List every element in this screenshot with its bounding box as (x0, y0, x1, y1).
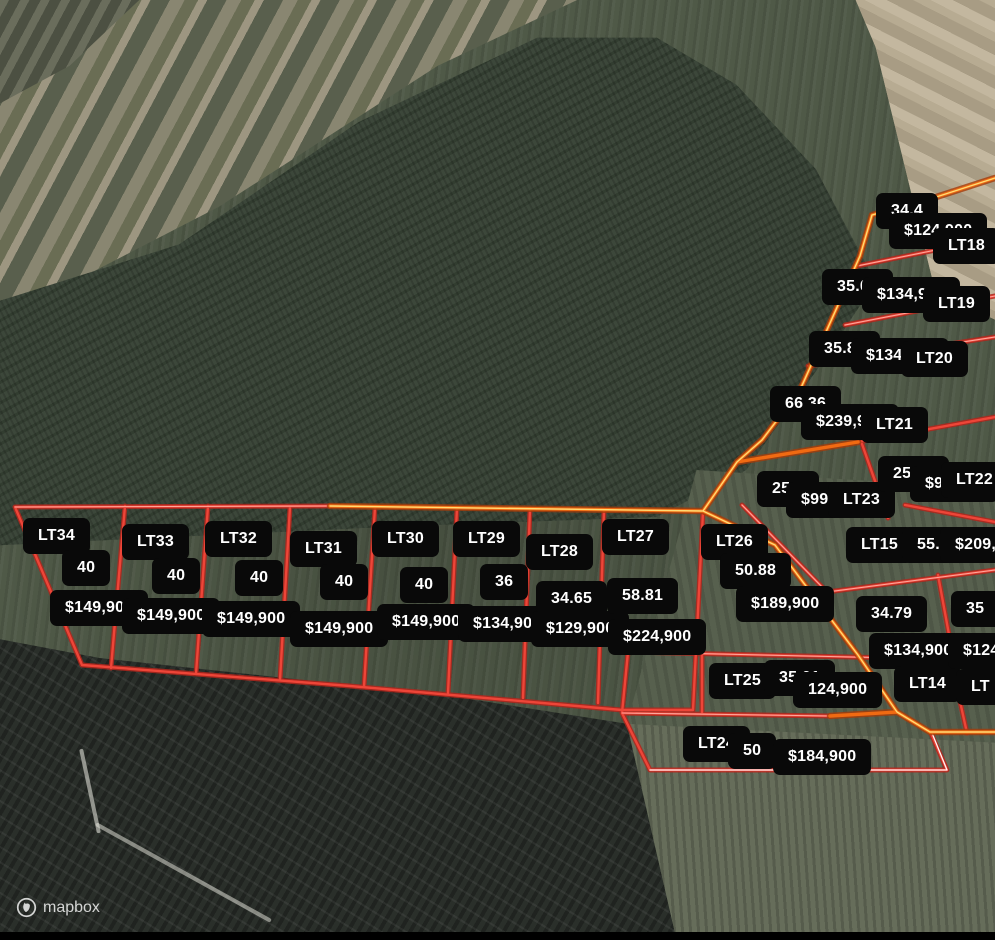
lot-label-lt13-partial-2[interactable]: LT (956, 669, 995, 705)
lot-label-lt30-0[interactable]: LT30 (372, 521, 439, 557)
lot-label-lt25-2[interactable]: 124,900 (793, 672, 882, 708)
bottom-letterbox (0, 932, 995, 940)
lot-label-lt24-1[interactable]: 50 (728, 733, 776, 769)
lot-label-lt33-1[interactable]: 40 (152, 558, 200, 594)
lot-label-lt28-0[interactable]: LT28 (526, 534, 593, 570)
lot-label-lt29-1[interactable]: 36 (480, 564, 528, 600)
lot-label-lt27-0[interactable]: LT27 (602, 519, 669, 555)
lot-label-lt22-2[interactable]: LT22 (941, 462, 995, 498)
lot-label-lt32-1[interactable]: 40 (235, 560, 283, 596)
lot-label-lt24-2[interactable]: $184,900 (773, 739, 871, 775)
lot-label-lt34-0[interactable]: LT34 (23, 518, 90, 554)
lot-label-lt13-partial-1[interactable]: $124,9 (948, 633, 995, 669)
lot-label-lt30-1[interactable]: 40 (400, 567, 448, 603)
lot-label-lt27-1[interactable]: 58.81 (607, 578, 678, 614)
lot-label-lt32-2[interactable]: $149,900 (202, 601, 300, 637)
lot-label-lt26-2[interactable]: $189,900 (736, 586, 834, 622)
lot-label-lt31-0[interactable]: LT31 (290, 531, 357, 567)
lot-label-lt26-1[interactable]: 50.88 (720, 553, 791, 589)
lot-label-lt19-2[interactable]: LT19 (923, 286, 990, 322)
lot-label-lt33-0[interactable]: LT33 (122, 524, 189, 560)
lot-label-lt15-2[interactable]: $209,90 (940, 527, 995, 563)
lot-label-lt21-2[interactable]: LT21 (861, 407, 928, 443)
lot-label-lt18-2[interactable]: LT18 (933, 228, 995, 264)
lot-label-lt27-2[interactable]: $224,900 (608, 619, 706, 655)
lot-label-lt34-1[interactable]: 40 (62, 550, 110, 586)
mapbox-wordmark: mapbox (43, 899, 100, 917)
map-canvas[interactable]: LT3440$149,900LT3340$149,900LT3240$149,9… (0, 0, 995, 940)
lot-label-lt14-2[interactable]: LT14 (894, 666, 961, 702)
lot-label-lt31-2[interactable]: $149,900 (290, 611, 388, 647)
lot-label-lt20-2[interactable]: LT20 (901, 341, 968, 377)
lot-label-lt14-0[interactable]: 34.79 (856, 596, 927, 632)
lot-label-lt29-0[interactable]: LT29 (453, 521, 520, 557)
mapbox-logo-icon (16, 897, 37, 918)
lot-label-lt31-1[interactable]: 40 (320, 564, 368, 600)
lot-label-lt32-0[interactable]: LT32 (205, 521, 272, 557)
lot-label-lt13-partial-0[interactable]: 35 (951, 591, 995, 627)
mapbox-attribution[interactable]: mapbox (16, 897, 100, 918)
lots-layer: LT3440$149,900LT3340$149,900LT3240$149,9… (0, 0, 995, 940)
